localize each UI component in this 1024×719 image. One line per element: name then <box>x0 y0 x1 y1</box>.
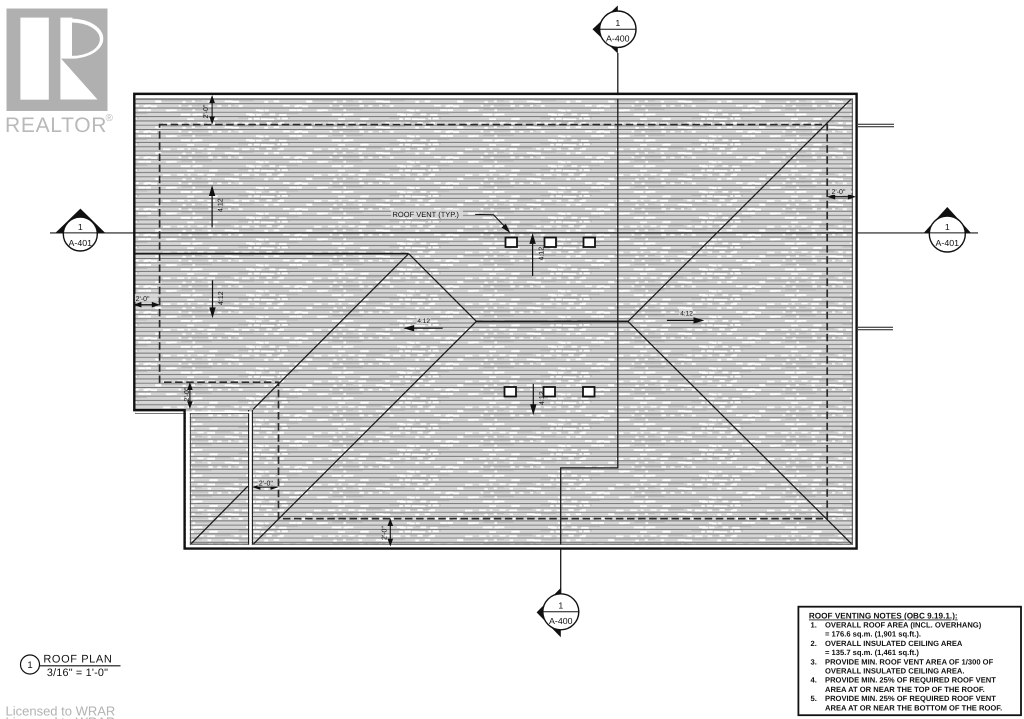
svg-text:2'-0": 2'-0" <box>382 526 389 540</box>
svg-text:1.: 1. <box>811 621 817 630</box>
svg-text:4:12: 4:12 <box>417 318 430 325</box>
svg-text:4.: 4. <box>811 676 817 685</box>
svg-text:4:12: 4:12 <box>539 391 546 405</box>
svg-text:2'-0": 2'-0" <box>136 296 150 303</box>
svg-text:4:12: 4:12 <box>539 247 546 261</box>
svg-text:A-400: A-400 <box>606 33 630 43</box>
svg-text:OVERALL INSULATED CEILING AREA: OVERALL INSULATED CEILING AREA. <box>825 667 965 676</box>
svg-text:2'-0": 2'-0" <box>184 387 191 401</box>
svg-text:1: 1 <box>78 222 83 232</box>
svg-text:OVERALL ROOF AREA (INCL. OVERH: OVERALL ROOF AREA (INCL. OVERHANG) <box>825 621 982 630</box>
svg-text:A-401: A-401 <box>69 238 93 248</box>
svg-text:= 135.7 sq.m. (1,461 sq.ft.): = 135.7 sq.m. (1,461 sq.ft.) <box>825 648 919 657</box>
svg-text:ROOF PLAN: ROOF PLAN <box>43 654 112 666</box>
svg-text:4:12: 4:12 <box>218 291 225 305</box>
svg-text:4:12: 4:12 <box>218 198 225 212</box>
svg-text:OVERALL INSULATED CEILING AREA: OVERALL INSULATED CEILING AREA <box>825 639 963 648</box>
svg-text:2'-0": 2'-0" <box>203 104 210 118</box>
svg-text:REALTOR: REALTOR <box>5 114 107 137</box>
svg-text:A-400: A-400 <box>549 616 573 626</box>
svg-text:= 176.6 sq.m. (1,901 sq.ft.).: = 176.6 sq.m. (1,901 sq.ft.). <box>825 630 921 639</box>
svg-text:4:12: 4:12 <box>680 311 693 318</box>
svg-text:2'-0": 2'-0" <box>259 480 273 487</box>
svg-text:5.: 5. <box>811 694 817 703</box>
svg-text:3/16" = 1'-0": 3/16" = 1'-0" <box>47 667 108 679</box>
svg-text:A-401: A-401 <box>936 238 960 248</box>
svg-text:AREA AT OR NEAR THE BOTTOM OF: AREA AT OR NEAR THE BOTTOM OF THE ROOF. <box>825 703 1002 712</box>
svg-text:2'-0": 2'-0" <box>832 189 846 196</box>
svg-text:PROVIDE MIN. 25% OF REQUIRED R: PROVIDE MIN. 25% OF REQUIRED ROOF VENT <box>825 676 996 685</box>
svg-text:1: 1 <box>558 600 563 610</box>
svg-text:1: 1 <box>27 660 32 671</box>
svg-text:®: ® <box>106 113 114 124</box>
svg-text:PROVIDE MIN. ROOF VENT AREA OF: PROVIDE MIN. ROOF VENT AREA OF 1/300 OF <box>825 657 994 666</box>
svg-text:2.: 2. <box>811 639 817 648</box>
svg-text:1: 1 <box>945 222 950 232</box>
svg-text:Licensed to WRAR: Licensed to WRAR <box>6 714 116 719</box>
svg-text:1: 1 <box>615 18 620 28</box>
svg-text:3.: 3. <box>811 657 817 666</box>
svg-text:PROVIDE MIN. 25% OF REQUIRED R: PROVIDE MIN. 25% OF REQUIRED ROOF VENT <box>825 694 996 703</box>
svg-text:ROOF VENT (TYP.): ROOF VENT (TYP.) <box>393 210 460 219</box>
svg-text:AREA AT OR NEAR THE TOP OF THE: AREA AT OR NEAR THE TOP OF THE ROOF. <box>825 685 985 694</box>
svg-text:ROOF VENTING NOTES (OBC 9.19.1: ROOF VENTING NOTES (OBC 9.19.1.): <box>809 612 958 621</box>
